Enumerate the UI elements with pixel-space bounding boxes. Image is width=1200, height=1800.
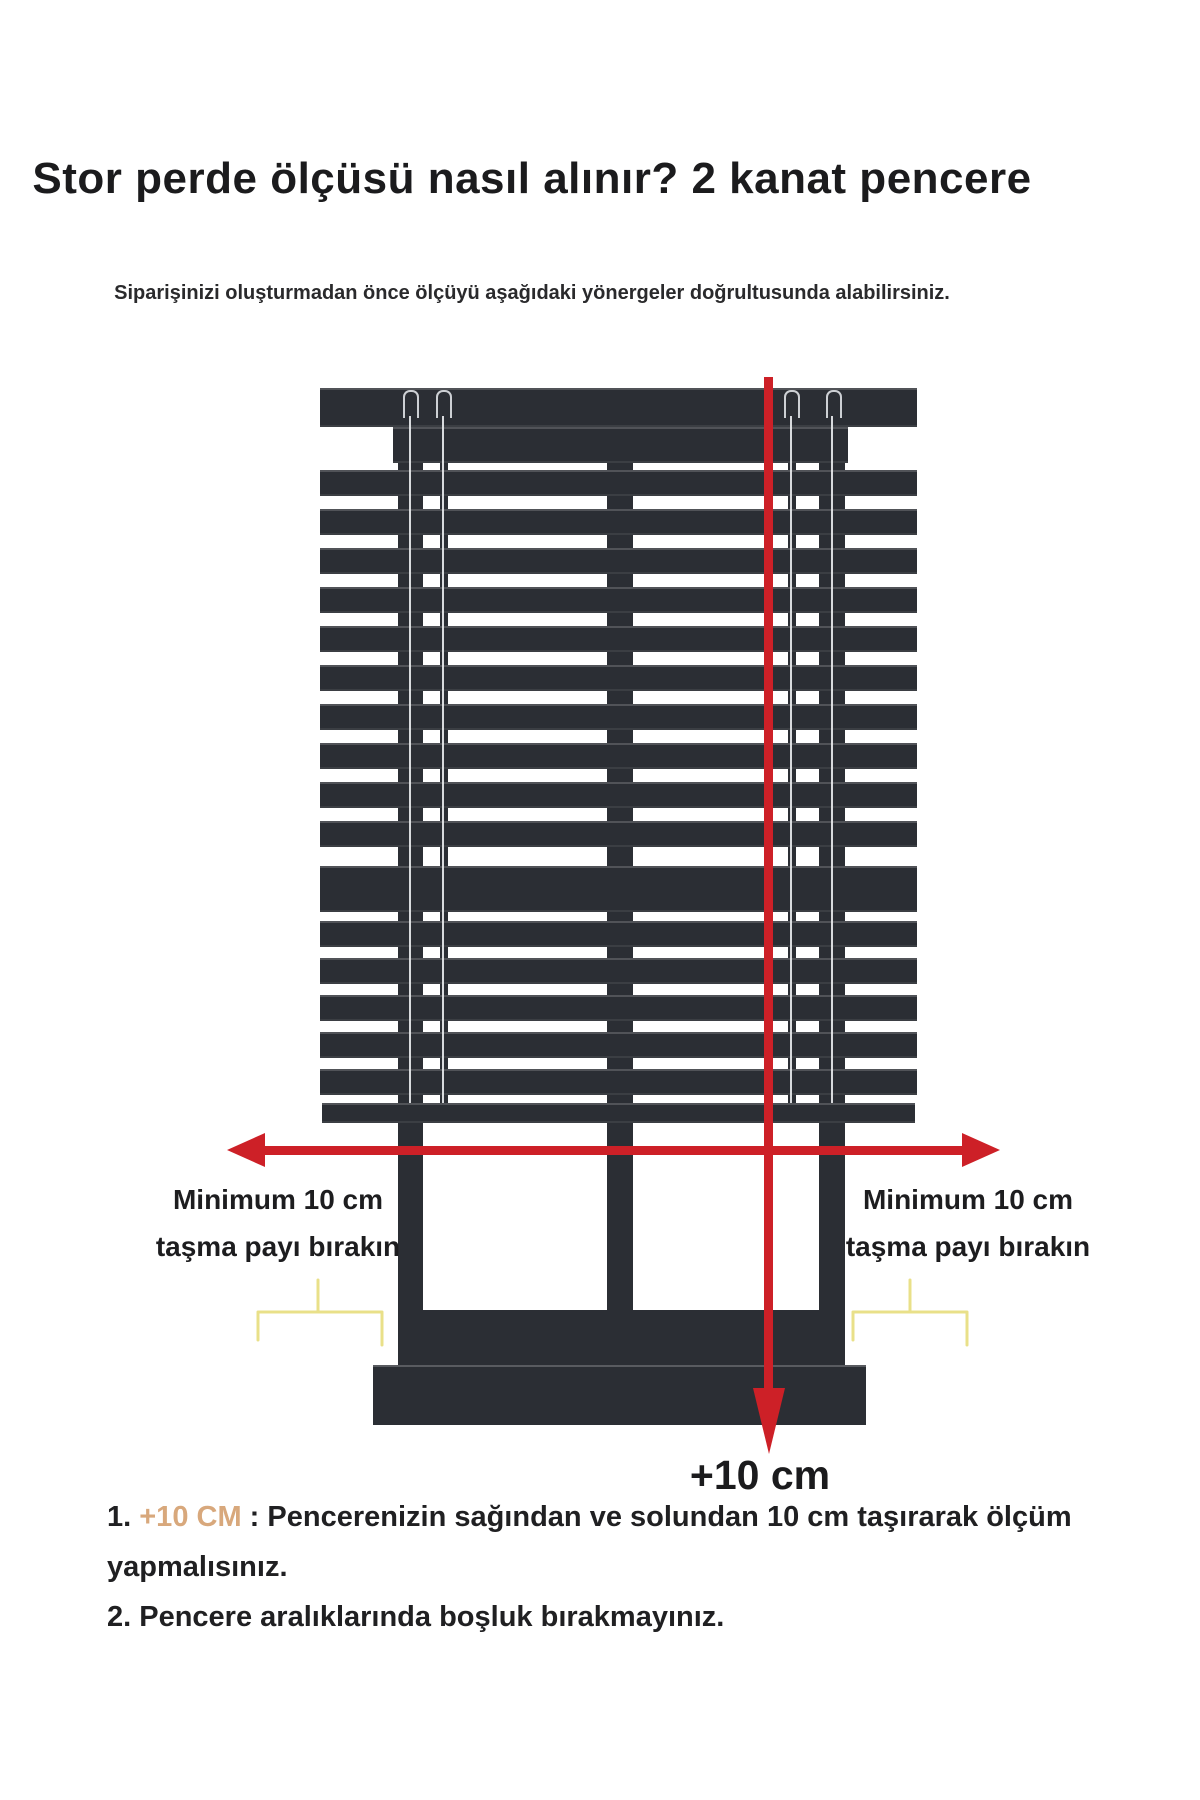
page-subtitle: Siparişinizi oluşturmadan önce ölçüyü aş… [0, 282, 1064, 305]
instruction-1-number: 1. [107, 1501, 139, 1533]
left-overhang-label-line2: taşma payı bırakın [128, 1223, 428, 1270]
arrow-down-icon [753, 1388, 785, 1454]
vertical-measure-arrow [764, 377, 773, 1388]
blind-cord [790, 416, 792, 1103]
window-bottom-frame [398, 1310, 845, 1365]
cord-loop-icon [436, 390, 452, 418]
cord-loop-icon [826, 390, 842, 418]
cord-loop-icon [784, 390, 800, 418]
cord-loop-icon [403, 390, 419, 418]
instructions-block: 1. +10 CM : Pencerenizin sağından ve sol… [107, 1492, 1107, 1642]
blinds-valance-bar [393, 427, 848, 463]
instruction-2: 2. Pencere aralıklarında boşluk bırakmay… [107, 1592, 1107, 1642]
arrow-left-icon [227, 1133, 265, 1167]
left-overhang-label-line1: Minimum 10 cm [128, 1176, 428, 1223]
bracket-right-icon [853, 1280, 967, 1345]
horizontal-measure-arrow [262, 1146, 963, 1155]
arrow-right-icon [962, 1133, 1000, 1167]
right-overhang-label-line1: Minimum 10 cm [818, 1176, 1118, 1223]
blind-cord [409, 416, 411, 1103]
page-title: Stor perde ölçüsü nasıl alınır? 2 kanat … [0, 154, 1064, 204]
window-sill [373, 1365, 866, 1425]
instruction-1-text: : Pencerenizin sağından ve solundan 10 c… [107, 1501, 1072, 1583]
right-overhang-label-line2: taşma payı bırakın [818, 1223, 1118, 1270]
blind-cord [831, 416, 833, 1103]
right-overhang-label: Minimum 10 cm taşma payı bırakın [818, 1176, 1118, 1270]
instruction-1-highlight: +10 CM [139, 1501, 241, 1533]
blind-cord [442, 416, 444, 1103]
blinds-bottom-rail [322, 1103, 915, 1123]
left-overhang-label: Minimum 10 cm taşma payı bırakın [128, 1176, 428, 1270]
instruction-1: 1. +10 CM : Pencerenizin sağından ve sol… [107, 1492, 1107, 1592]
bracket-left-icon [258, 1280, 382, 1345]
